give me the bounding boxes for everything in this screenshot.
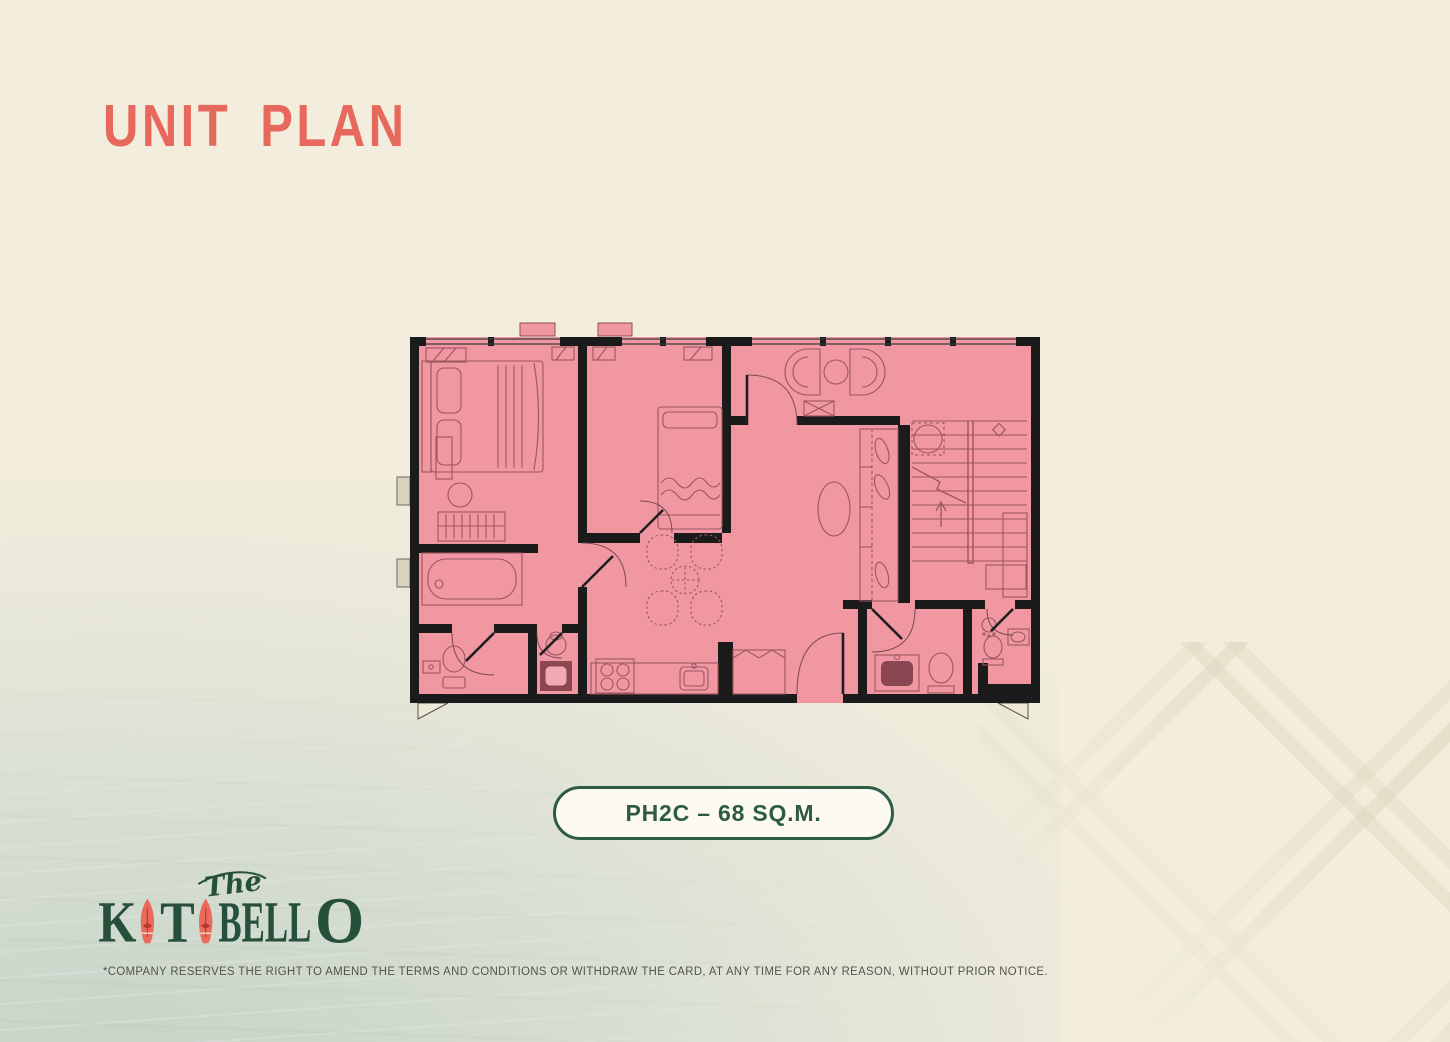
brand-wordmark: K T BELL O [98,885,364,957]
disclaimer-text: *COMPANY RESERVES THE RIGHT TO AMEND THE… [103,966,950,978]
brand-letter-o: O [315,885,364,957]
brand-letters-bell: BELL [218,889,311,954]
brand-logo: The K T BELL O [95,864,371,966]
brand-letter-k: K [98,889,136,954]
page-title: UNIT PLAN [103,92,407,161]
surfboard-icon [141,899,154,944]
brand-letter-t: T [160,889,195,954]
page-background: UNIT PLAN [0,0,1450,1042]
unit-floor-plan [394,319,1056,721]
unit-area-label: PH2C – 68 SQ.M. [625,800,821,827]
surfboard-icon [199,899,212,944]
unit-area-badge: PH2C – 68 SQ.M. [553,786,894,840]
